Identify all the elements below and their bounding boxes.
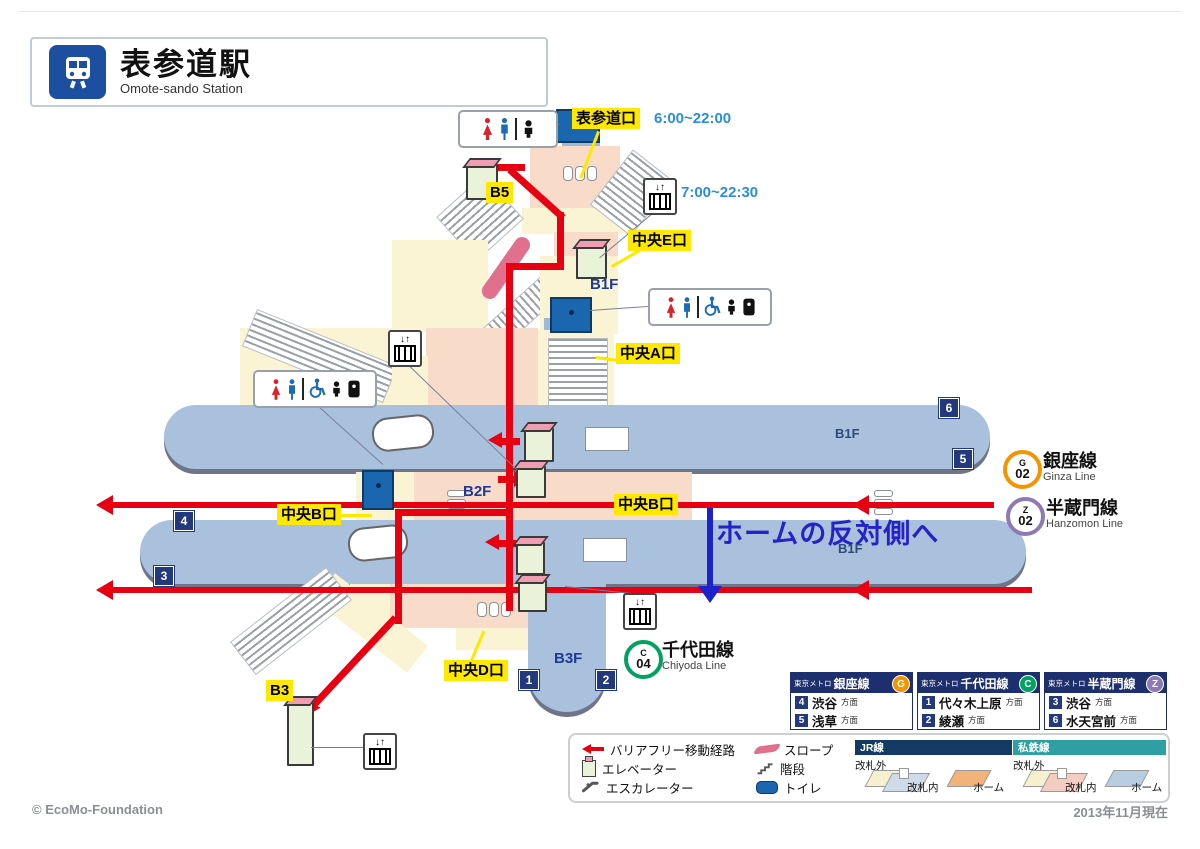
floor-label-upper-platform: B1F <box>835 426 860 441</box>
legend-toilet-label: トイレ <box>784 778 822 797</box>
legend-elevator-label: エレベーター <box>602 759 677 778</box>
machine-shape <box>585 427 629 451</box>
elevator-icon: ↓↑ <box>363 733 397 770</box>
concourse-shape <box>456 628 528 650</box>
elevator-icon: ↓↑ <box>388 330 422 367</box>
legend-slope-label: スロープ <box>784 740 833 759</box>
route-arrowhead <box>96 495 113 515</box>
platform-number-3: 3 <box>154 566 174 586</box>
private-line-header: 私鉄線 <box>1013 740 1166 755</box>
copyright: © EcoMo-Foundation <box>32 802 163 817</box>
route-arrowhead <box>852 580 869 600</box>
elevator-box <box>516 466 546 498</box>
jr-line-header: JR線 <box>855 740 1012 755</box>
legend-route-label: バリアフリー移動経路 <box>610 740 735 759</box>
floor-label-lower-platform: B1F <box>838 541 863 556</box>
legend-box: バリアフリー移動経路 エレベーター エスカレーター スロープ 階段 ト <box>568 733 1170 803</box>
woman-icon <box>481 116 494 142</box>
woman-icon <box>665 295 677 320</box>
private-platform-label: ホーム <box>1131 780 1162 795</box>
station-title-box: 表参道駅 Omote-sando Station <box>30 37 548 107</box>
stairs-legend-icon <box>756 761 774 775</box>
floor-label-b5: B5 <box>486 182 513 203</box>
platform-number-4: 4 <box>174 511 194 531</box>
route-arrow-icon <box>582 744 604 754</box>
exit-label-chuo-b-left: 中央B口 <box>277 504 341 525</box>
exit-hours: 6:00~22:00 <box>654 110 731 127</box>
hanzomon-line-icon: Z02 <box>1006 497 1045 536</box>
route-arrowhead <box>96 580 113 600</box>
jr-gate-shape <box>899 768 909 779</box>
elevator-icon: ↓↑ <box>643 178 677 215</box>
slope-legend-icon <box>753 744 781 755</box>
direction-box-chiyoda: 東京メトロ千代田線C 1代々木上原方面 2綾瀬方面 <box>917 672 1040 730</box>
station-map-page: 表参道駅 Omote-sando Station <box>0 0 1200 849</box>
ostomate-icon <box>347 379 361 399</box>
private-gate-shape <box>1057 768 1067 779</box>
route-segment <box>557 212 564 270</box>
route-segment <box>498 476 514 483</box>
direction-box-hanzomon: 東京メトロ半蔵門線Z 3渋谷方面 6水天宮前方面 <box>1044 672 1167 730</box>
ginza-line-icon: G02 <box>1003 450 1042 489</box>
stairs-shape <box>548 338 608 412</box>
elevator-box <box>576 245 607 279</box>
station-title-ja: 表参道駅 <box>120 49 252 81</box>
train-icon <box>49 45 106 99</box>
exit-label-chuo-b-right: 中央B口 <box>614 494 678 515</box>
baby-icon <box>521 117 536 141</box>
elevator-hours: 7:00~22:30 <box>681 184 758 201</box>
chiyoda-badge-icon: C <box>1019 675 1037 693</box>
legend-jr-group: JR線 改札外 改札内 ホーム <box>855 740 1007 794</box>
toilet-legend-box <box>458 110 558 148</box>
man-icon <box>498 116 511 142</box>
elevator-legend-icon <box>582 760 596 777</box>
legend-private-group: 私鉄線 改札外 改札内 ホーム <box>1013 740 1165 794</box>
exit-label-omotesando: 表参道口 <box>572 108 640 129</box>
baby-icon <box>725 296 738 318</box>
exit-label-chuo-e: 中央E口 <box>628 230 691 251</box>
route-segment <box>395 509 513 516</box>
hanzomon-badge-icon: Z <box>1146 675 1164 693</box>
direction-box-ginza: 東京メトロ銀座線G 4渋谷方面 5浅草方面 <box>790 672 913 730</box>
toilet-marker <box>550 297 592 333</box>
toilet-marker <box>362 470 394 510</box>
wheelchair-icon <box>703 295 721 319</box>
legend-escalator-label: エスカレーター <box>606 778 694 797</box>
toilet-legend-icon <box>756 781 778 794</box>
jr-inside-label: 改札内 <box>907 780 939 795</box>
elevator-box <box>524 428 554 462</box>
jr-platform-label: ホーム <box>973 780 1004 795</box>
route-line-lower <box>108 587 1032 593</box>
leader-line <box>311 747 363 748</box>
opposite-side-note: ホームの反対側へ <box>716 512 939 551</box>
legend-stairs-label: 階段 <box>780 759 805 778</box>
platform-number-2: 2 <box>596 670 616 690</box>
ginza-badge-icon: G <box>892 675 910 693</box>
man-icon <box>286 377 298 402</box>
upper-platform <box>164 405 990 469</box>
exit-label-chuo-a: 中央A口 <box>616 343 680 364</box>
concourse-shape <box>392 240 488 332</box>
private-inside-label: 改札内 <box>1065 780 1097 795</box>
exit-label-chuo-d: 中央D口 <box>444 660 508 681</box>
baby-icon <box>330 378 343 400</box>
toilet-legend-box <box>648 288 772 326</box>
ostomate-icon <box>742 297 756 317</box>
wheelchair-icon <box>308 377 326 401</box>
divider <box>515 118 517 140</box>
floor-label-b1f: B1F <box>590 276 618 293</box>
date-note: 2013年11月現在 <box>1040 802 1168 821</box>
route-segment <box>506 263 564 270</box>
machine-shape <box>583 538 627 562</box>
ginza-line-name: 銀座線 Ginza Line <box>1043 452 1097 483</box>
woman-icon <box>270 377 282 402</box>
platform-number-6: 6 <box>939 398 959 418</box>
man-icon <box>681 295 693 320</box>
toilet-legend-box <box>253 370 377 408</box>
route-arrowhead <box>485 534 499 550</box>
divider <box>302 378 304 400</box>
platform-number-5: 5 <box>953 449 973 469</box>
hanzomon-line-name: 半蔵門線 Hanzomon Line <box>1046 499 1123 530</box>
chiyoda-line-icon: C04 <box>624 640 663 679</box>
floor-label-b3f: B3F <box>554 650 582 667</box>
elevator-box <box>518 580 547 612</box>
route-segment <box>395 509 402 624</box>
opposite-side-line <box>707 508 713 588</box>
elevator-icon: ↓↑ <box>623 593 657 630</box>
elevator-box-b3 <box>287 702 314 766</box>
chiyoda-line-name: 千代田線 Chiyoda Line <box>662 641 734 672</box>
route-segment <box>502 438 520 445</box>
divider <box>697 296 699 318</box>
platform-number-1: 1 <box>519 670 539 690</box>
floor-label-b2f: B2F <box>463 483 491 500</box>
station-title-en: Omote-sando Station <box>120 81 252 96</box>
label-leader <box>338 514 372 517</box>
page-frame-line <box>18 11 1182 12</box>
elevator-box <box>516 542 545 575</box>
escalator-legend-icon <box>582 780 600 794</box>
opposite-side-arrowhead <box>698 586 722 603</box>
floor-label-b3: B3 <box>266 680 293 701</box>
route-segment <box>506 263 513 611</box>
